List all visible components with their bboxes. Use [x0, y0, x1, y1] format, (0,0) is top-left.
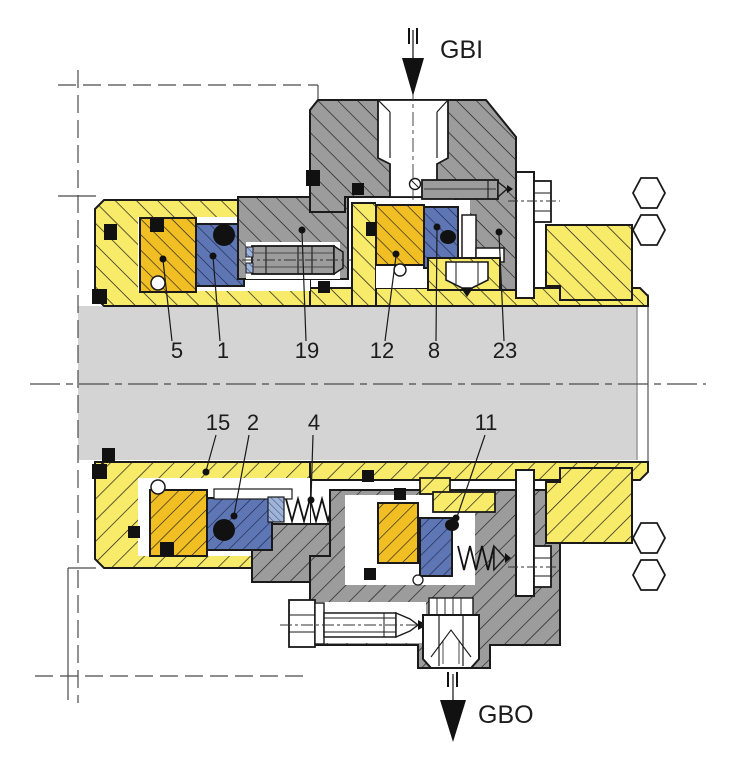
technical-drawing-page: GBI GBO 5 1 19 12 8 23 15 2 4 11 — [0, 0, 731, 768]
o-ring — [102, 448, 115, 462]
hex-bolt-head — [633, 178, 665, 208]
gland-plate-bottom — [516, 470, 534, 596]
shaft — [78, 294, 648, 472]
gland-plate-top — [516, 172, 534, 298]
drive-pin — [413, 575, 423, 585]
drive-pin — [151, 276, 165, 290]
gbi-label: GBI — [440, 36, 483, 64]
o-ring — [440, 230, 456, 244]
o-ring — [213, 519, 235, 541]
o-ring — [366, 222, 376, 236]
o-ring — [213, 224, 235, 246]
gbo-label: GBO — [478, 701, 534, 729]
callout-12: 12 — [370, 338, 394, 363]
hex-bolt-head — [289, 600, 315, 647]
callout-2: 2 — [247, 410, 259, 435]
callout-4: 4 — [308, 410, 320, 435]
o-ring — [128, 526, 140, 538]
callout-23: 23 — [493, 338, 517, 363]
seal-face-ring-5 — [140, 218, 196, 292]
o-ring — [306, 170, 320, 186]
o-ring — [92, 289, 107, 304]
o-ring — [318, 281, 330, 293]
callout-5: 5 — [171, 338, 183, 363]
set-screw-19 — [242, 246, 354, 274]
drive-pin — [151, 480, 165, 494]
sleeve-shoulder-top — [352, 203, 376, 306]
o-ring — [364, 568, 376, 580]
gbo-plug — [423, 598, 479, 668]
hex-plug-head — [423, 615, 479, 668]
drive-pin — [394, 264, 406, 276]
o-ring — [92, 464, 107, 479]
seal-cross-section-drawing: GBI GBO 5 1 19 12 8 23 15 2 4 11 — [0, 0, 731, 768]
callout-8: 8 — [428, 338, 440, 363]
seal-face-ring-bottom-right — [378, 503, 418, 563]
callout-15: 15 — [206, 410, 230, 435]
o-ring — [362, 470, 374, 482]
callout-19: 19 — [295, 338, 319, 363]
o-ring — [104, 224, 117, 240]
gland-bolt-bottom-horizontal — [280, 600, 438, 647]
seal-face-ring-12 — [376, 205, 424, 265]
gland-pin-top — [410, 179, 514, 200]
hex-bolt-head — [633, 523, 665, 553]
seal-face-ring-bottom-left — [150, 480, 207, 556]
o-ring-gasket — [160, 542, 174, 556]
o-ring — [352, 183, 364, 195]
callout-11: 11 — [475, 410, 498, 435]
o-ring-gasket — [150, 218, 164, 232]
o-ring — [394, 488, 406, 500]
hex-bolt-head — [633, 560, 665, 590]
callout-1: 1 — [217, 338, 229, 363]
hex-bolt-head — [633, 215, 665, 245]
spring-retainer — [268, 497, 284, 522]
